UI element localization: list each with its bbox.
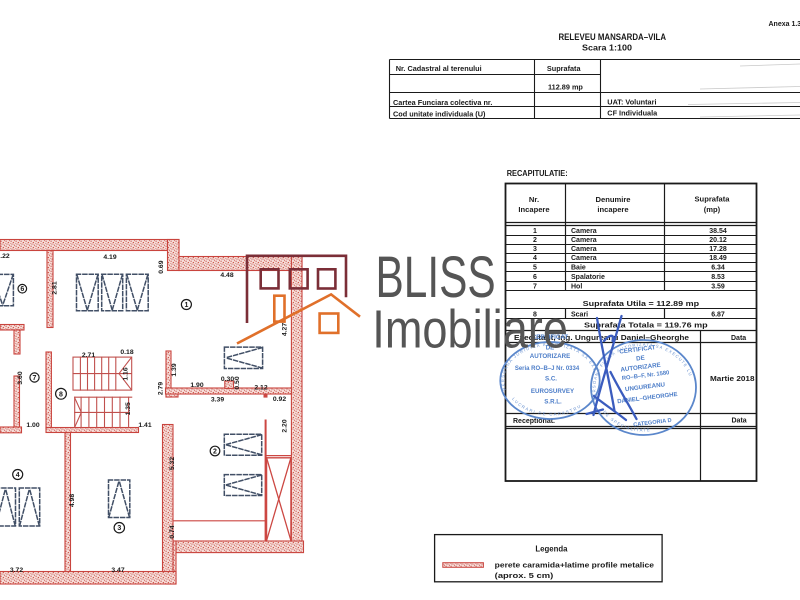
svg-text:2.81: 2.81 (52, 281, 59, 294)
svg-text:1.41: 1.41 (138, 422, 151, 429)
svg-text:0.69: 0.69 (158, 260, 165, 273)
svg-text:1.90: 1.90 (190, 382, 203, 389)
svg-text:incapere: incapere (597, 205, 628, 214)
svg-text:20.12: 20.12 (709, 237, 727, 244)
svg-text:4.98: 4.98 (69, 494, 76, 507)
svg-text:8: 8 (59, 391, 63, 398)
svg-text:2.20: 2.20 (282, 419, 289, 432)
svg-text:Nr.: Nr. (529, 195, 539, 204)
svg-text:.22: .22 (0, 253, 10, 260)
svg-text:S.R.L.: S.R.L. (544, 399, 562, 406)
svg-text:Suprafata Totala = 119.76: Suprafata Totala = 119.76 mp (584, 322, 708, 329)
svg-text:Camera: Camera (571, 237, 597, 244)
svg-text:0.74: 0.74 (169, 525, 176, 538)
svg-text:perete caramida+latime profile: perete caramida+latime profile metalice (495, 561, 654, 570)
svg-text:3.47: 3.47 (111, 567, 124, 574)
svg-text:CF Individuala: CF Individuala (607, 109, 658, 118)
svg-text:Scari: Scari (571, 312, 588, 319)
svg-text:Cod unitate individuala (U): Cod unitate individuala (U) (393, 110, 486, 119)
svg-text:Anexa 1.35: Anexa 1.35 (769, 21, 800, 28)
svg-text:2: 2 (213, 449, 217, 456)
svg-text:UNGUREANU: UNGUREANU (625, 381, 666, 393)
svg-text:112.89 mp: 112.89 mp (548, 83, 583, 92)
svg-text:6: 6 (20, 286, 24, 293)
svg-text:Incapere: Incapere (518, 205, 549, 214)
svg-text:(aprox. 5 cm): (aprox. 5 cm) (495, 571, 554, 580)
svg-text:3.59: 3.59 (711, 284, 725, 291)
svg-text:4.19: 4.19 (103, 254, 116, 261)
svg-text:17.28: 17.28 (709, 246, 727, 253)
svg-text:Data: Data (732, 418, 747, 425)
svg-text:2: 2 (533, 237, 537, 244)
svg-text:Baie: Baie (571, 265, 586, 272)
svg-text:Suprafata: Suprafata (694, 195, 730, 204)
svg-text:4.48: 4.48 (220, 272, 233, 279)
svg-text:DE: DE (636, 355, 645, 363)
svg-text:Legenda: Legenda (535, 545, 568, 554)
svg-text:1: 1 (533, 228, 537, 235)
svg-text:UAT: Voluntari: UAT: Voluntari (607, 98, 656, 107)
svg-text:4: 4 (533, 255, 537, 262)
svg-text:8.53: 8.53 (711, 274, 725, 281)
svg-text:0.30: 0.30 (221, 376, 234, 383)
svg-text:1.35: 1.35 (125, 402, 132, 415)
svg-text:Hol: Hol (571, 284, 582, 291)
svg-text:Martie 2018: Martie 2018 (710, 376, 755, 383)
svg-text:(mp): (mp) (704, 205, 721, 214)
svg-text:EUROSURVEY: EUROSURVEY (531, 388, 575, 395)
svg-text:7: 7 (533, 284, 537, 291)
svg-text:6.34: 6.34 (711, 265, 725, 272)
svg-text:2.71: 2.71 (82, 352, 95, 359)
svg-text:2.79: 2.79 (158, 382, 165, 395)
svg-text:Suprafata Utila = 112.89 m: Suprafata Utila = 112.89 mp (583, 301, 699, 308)
svg-text:Cartea Funciara colectiva nr.: Cartea Funciara colectiva nr. (393, 98, 492, 107)
svg-text:Spalatorie: Spalatorie (571, 274, 605, 281)
svg-text:4.27: 4.27 (282, 323, 289, 336)
svg-text:3: 3 (533, 246, 537, 253)
svg-text:6.87: 6.87 (711, 312, 725, 319)
svg-text:RECAPITULATIE:: RECAPITULATIE: (507, 169, 568, 178)
svg-text:Data: Data (731, 335, 746, 342)
svg-text:3.60: 3.60 (17, 371, 24, 384)
svg-text:3.39: 3.39 (211, 397, 224, 404)
svg-text:Nr. Cadastral al terenului: Nr. Cadastral al terenului (396, 64, 482, 73)
svg-text:Camera: Camera (571, 246, 597, 253)
svg-text:Suprafata: Suprafata (547, 64, 582, 73)
svg-text:5: 5 (533, 265, 537, 272)
svg-text:1.16: 1.16 (123, 367, 130, 380)
svg-text:Camera: Camera (571, 255, 597, 262)
svg-text:Denumire: Denumire (595, 195, 630, 204)
svg-text:4: 4 (16, 472, 20, 479)
svg-text:5.32: 5.32 (169, 457, 176, 470)
svg-text:18.49: 18.49 (709, 255, 727, 262)
svg-text:1.00: 1.00 (26, 422, 39, 429)
svg-text:Seria RO–B–J Nr. 0334: Seria RO–B–J Nr. 0334 (515, 366, 580, 372)
svg-text:3.72: 3.72 (10, 567, 23, 574)
svg-text:1.39: 1.39 (171, 363, 178, 376)
svg-text:1: 1 (184, 302, 188, 309)
svg-text:0.50: 0.50 (234, 376, 241, 389)
svg-text:3: 3 (117, 525, 121, 532)
svg-text:Scara 1:100: Scara 1:100 (582, 43, 632, 53)
svg-text:Camera: Camera (571, 228, 597, 235)
svg-text:0.92: 0.92 (273, 396, 286, 403)
svg-text:Imobiliare: Imobiliare (372, 298, 568, 359)
svg-text:RELEVEU MANSARDA–VILA: RELEVEU MANSARDA–VILA (559, 32, 667, 42)
svg-text:2.12: 2.12 (254, 385, 267, 392)
svg-text:6: 6 (533, 274, 537, 281)
svg-text:38.54: 38.54 (709, 228, 727, 235)
svg-text:7: 7 (33, 375, 37, 382)
svg-text:0.18: 0.18 (120, 349, 133, 356)
svg-text:S.C.: S.C. (545, 376, 557, 383)
